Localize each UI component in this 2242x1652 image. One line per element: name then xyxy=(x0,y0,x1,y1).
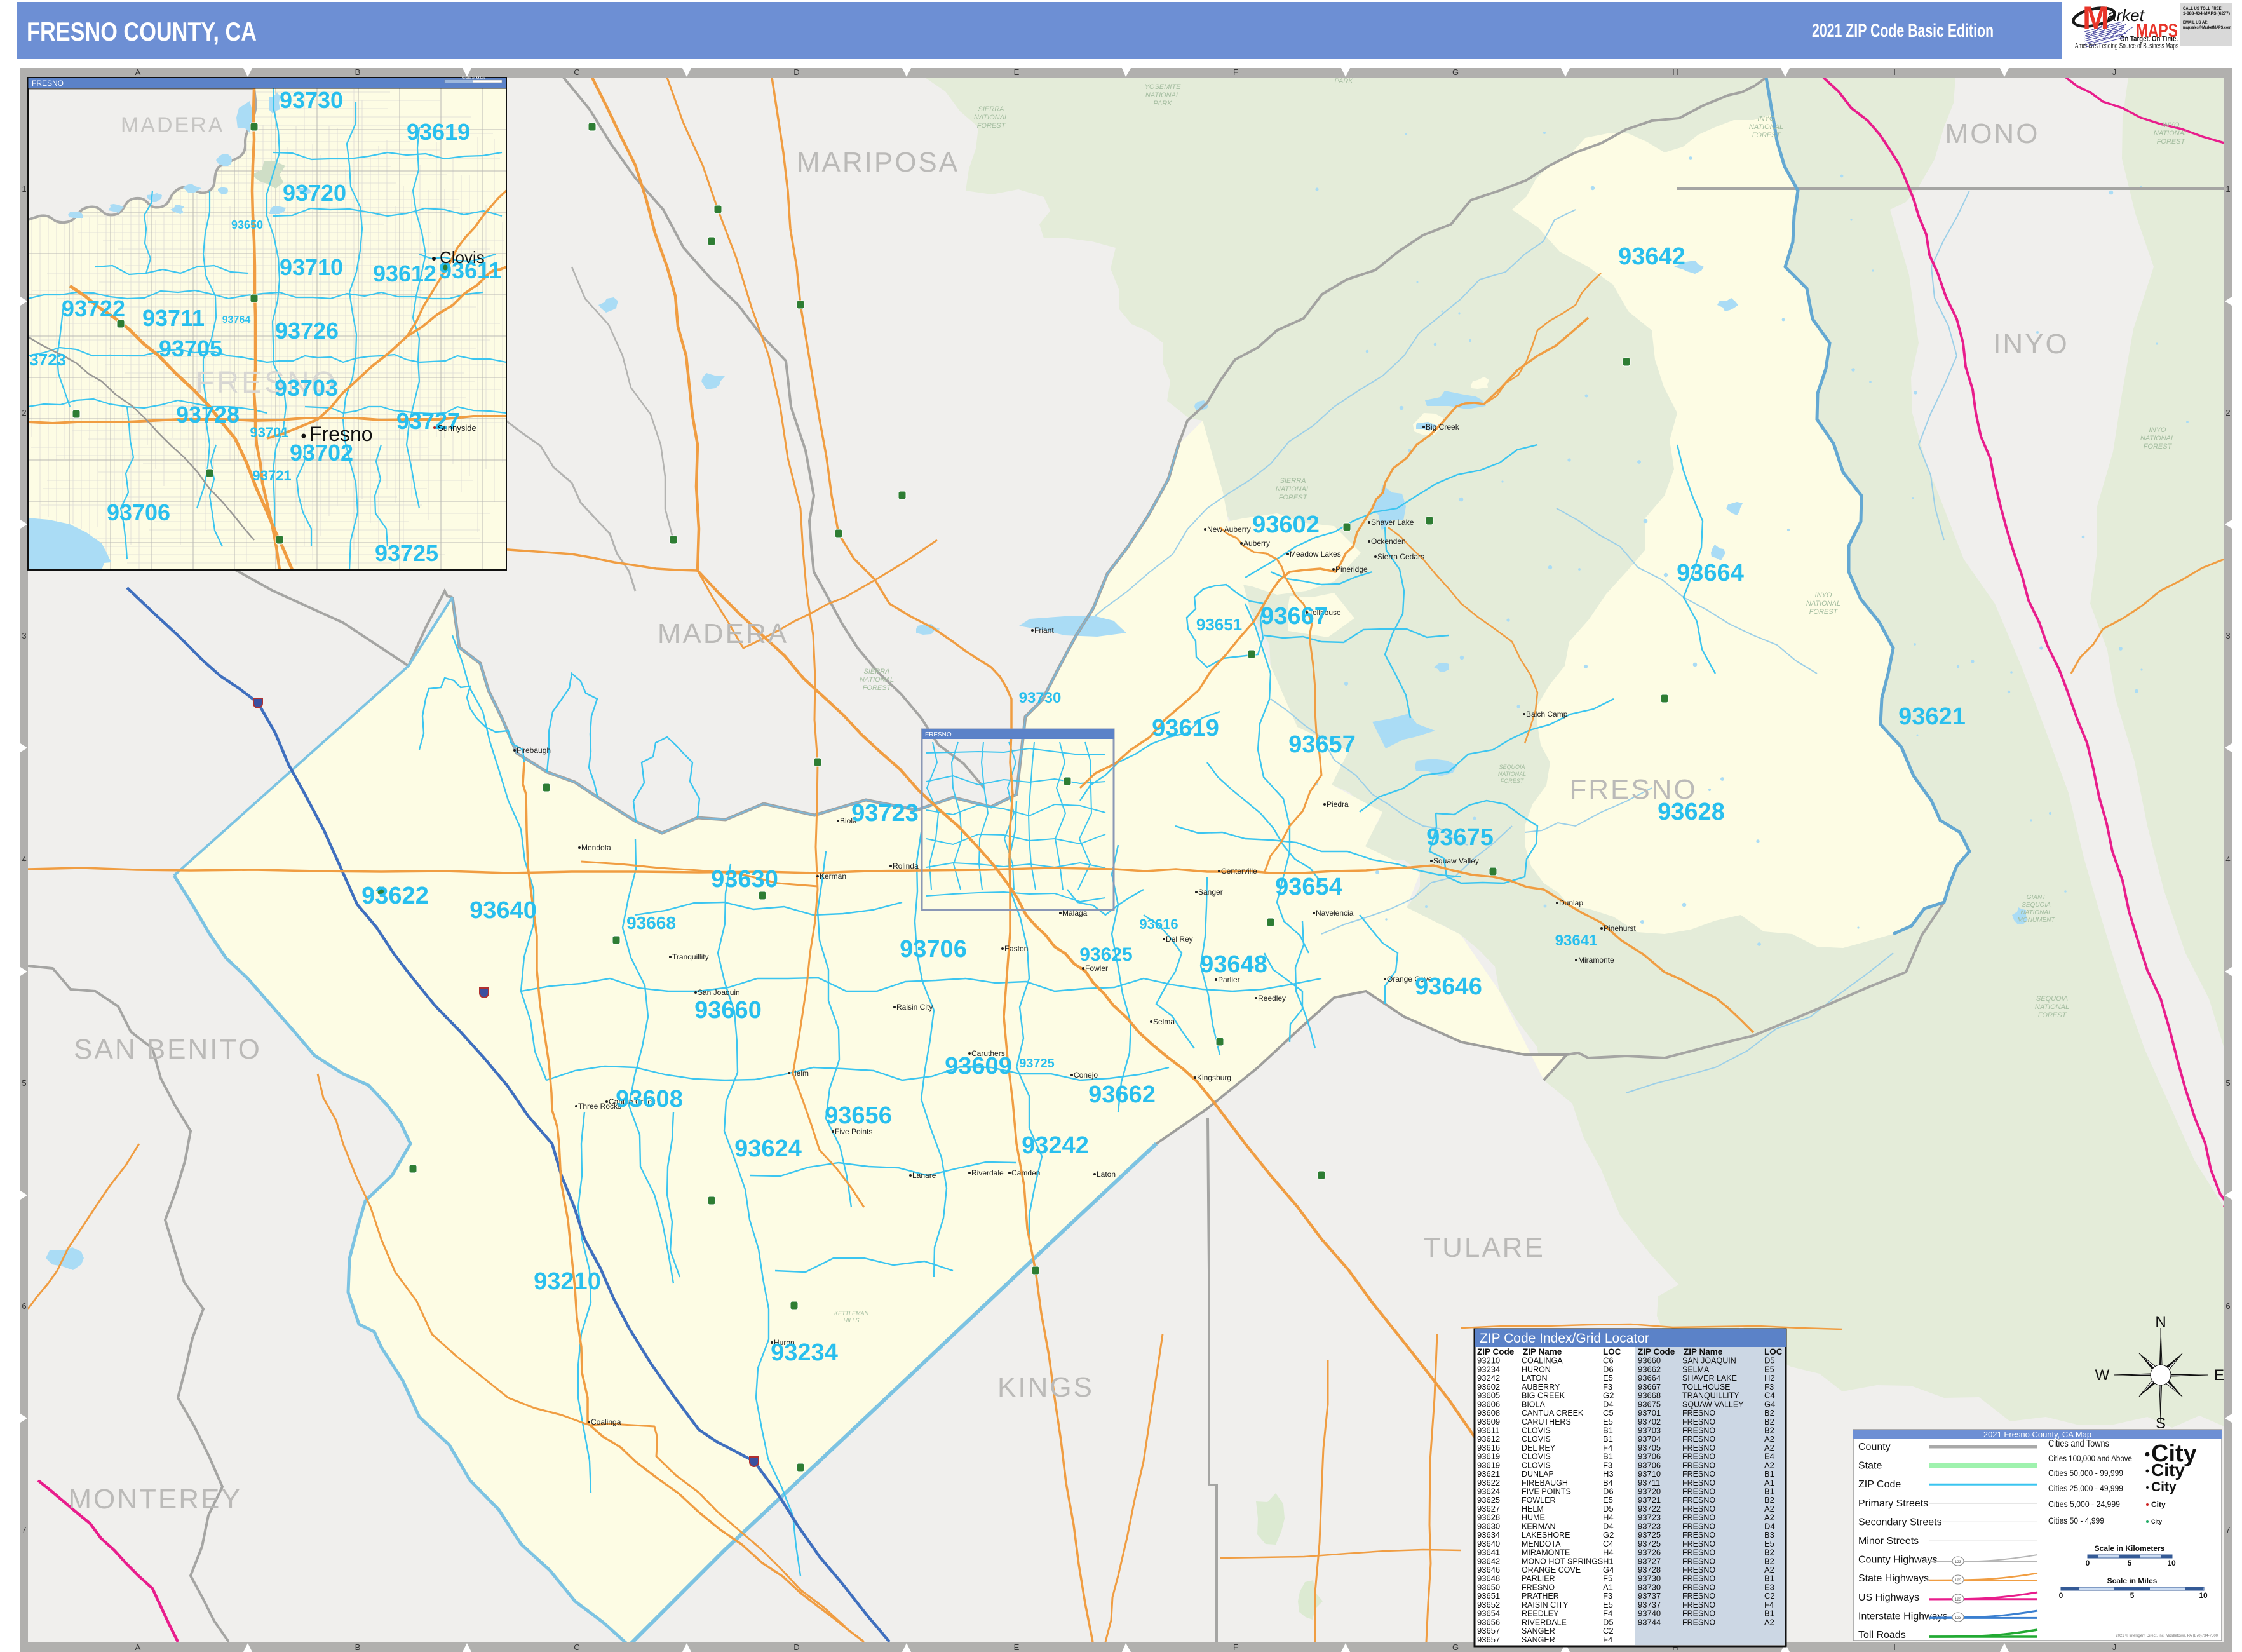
svg-text:FIVE POINTS: FIVE POINTS xyxy=(1522,1487,1571,1496)
svg-text:FOWLER: FOWLER xyxy=(1522,1496,1555,1505)
svg-text:93608: 93608 xyxy=(616,1086,683,1113)
svg-text:B2: B2 xyxy=(1764,1495,1774,1505)
svg-text:FIREBAUGH: FIREBAUGH xyxy=(1522,1479,1568,1487)
svg-text:Cities and Towns: Cities and Towns xyxy=(2048,1439,2109,1449)
svg-text:FOREST: FOREST xyxy=(1752,132,1781,139)
svg-text:NATIONAL: NATIONAL xyxy=(1145,91,1180,99)
svg-text:Sierra Cedars: Sierra Cedars xyxy=(1377,552,1424,561)
svg-text:93657: 93657 xyxy=(1477,1626,1500,1635)
svg-text:MONO: MONO xyxy=(1945,118,2040,149)
svg-text:FRESNO: FRESNO xyxy=(1682,1601,1715,1609)
svg-text:1-888-434-MAPS (6277): 1-888-434-MAPS (6277) xyxy=(2183,12,2230,16)
svg-text:Meadow Lakes: Meadow Lakes xyxy=(1290,550,1341,559)
svg-text:CLOVIS: CLOVIS xyxy=(1522,1452,1551,1461)
svg-text:A: A xyxy=(135,1642,141,1652)
svg-text:Del Rey: Del Rey xyxy=(1166,935,1193,944)
svg-text:FRESNO: FRESNO xyxy=(1682,1461,1715,1470)
svg-text:Kingsburg: Kingsburg xyxy=(1197,1073,1231,1082)
svg-text:93706: 93706 xyxy=(900,936,967,963)
svg-text:COALINGA: COALINGA xyxy=(1522,1357,1563,1365)
svg-text:FRESNO: FRESNO xyxy=(1682,1609,1715,1618)
svg-text:J: J xyxy=(2112,67,2117,77)
svg-text:FRESNO: FRESNO xyxy=(1682,1435,1715,1444)
svg-text:INYO: INYO xyxy=(1993,328,2069,360)
svg-text:Selma: Selma xyxy=(1153,1017,1175,1026)
svg-text:MADERA: MADERA xyxy=(121,113,224,137)
svg-text:MENDOTA: MENDOTA xyxy=(1522,1540,1561,1548)
svg-text:2021 Fresno County, CA Map: 2021 Fresno County, CA Map xyxy=(1983,1430,2091,1439)
svg-text:0: 0 xyxy=(2059,1591,2063,1600)
svg-text:INYO: INYO xyxy=(2149,426,2166,434)
svg-text:NATIONAL: NATIONAL xyxy=(2154,130,2188,137)
svg-text:93602: 93602 xyxy=(1252,511,1320,538)
svg-text:93608: 93608 xyxy=(1477,1408,1500,1418)
svg-text:93624: 93624 xyxy=(734,1135,802,1162)
svg-text:Rolinda: Rolinda xyxy=(893,862,919,870)
svg-text:93725: 93725 xyxy=(375,540,438,566)
svg-text:A2: A2 xyxy=(1764,1617,1774,1627)
svg-text:NATIONAL: NATIONAL xyxy=(974,114,1008,121)
svg-text:MARIPOSA: MARIPOSA xyxy=(797,147,959,178)
svg-text:ZIP Name: ZIP Name xyxy=(1684,1347,1723,1357)
svg-text:B: B xyxy=(355,1642,361,1652)
svg-text:M: M xyxy=(2083,0,2109,36)
svg-text:3: 3 xyxy=(22,631,26,640)
svg-text:93242: 93242 xyxy=(1022,1132,1089,1159)
svg-text:Scale in Miles: Scale in Miles xyxy=(2107,1576,2158,1585)
svg-text:INYO: INYO xyxy=(1815,592,1832,599)
svg-text:Primary Streets: Primary Streets xyxy=(1858,1498,1928,1509)
svg-text:NATIONAL: NATIONAL xyxy=(1498,771,1526,777)
svg-text:PARLIER: PARLIER xyxy=(1522,1574,1555,1583)
svg-text:93234: 93234 xyxy=(771,1339,838,1366)
svg-text:B: B xyxy=(355,67,361,77)
svg-text:City: City xyxy=(2151,1519,2162,1525)
svg-text:93721: 93721 xyxy=(252,468,291,484)
svg-text:3: 3 xyxy=(2225,631,2230,640)
svg-text:93650: 93650 xyxy=(231,219,263,231)
svg-text:93630: 93630 xyxy=(711,866,778,893)
svg-text:SIERRA: SIERRA xyxy=(1280,477,1306,485)
svg-text:Coalinga: Coalinga xyxy=(591,1418,621,1426)
svg-text:PARK: PARK xyxy=(1334,78,1353,85)
svg-text:E4: E4 xyxy=(1764,1452,1774,1461)
svg-text:Mendota: Mendota xyxy=(581,843,611,852)
svg-text:Easton: Easton xyxy=(1004,944,1028,953)
svg-text:D: D xyxy=(793,1642,799,1652)
svg-text:C: C xyxy=(574,1642,579,1652)
svg-text:E: E xyxy=(2214,1367,2224,1384)
svg-text:MONO HOT SPRINGS: MONO HOT SPRINGS xyxy=(1522,1557,1603,1566)
svg-text:FRESNO: FRESNO xyxy=(1682,1513,1715,1522)
svg-text:SELMA: SELMA xyxy=(1682,1365,1710,1374)
svg-text:Tranquillity: Tranquillity xyxy=(672,952,709,961)
svg-text:NATIONAL: NATIONAL xyxy=(1806,600,1840,607)
svg-text:SAN BENITO: SAN BENITO xyxy=(74,1034,262,1065)
svg-text:123: 123 xyxy=(1955,1598,1962,1602)
svg-text:93730: 93730 xyxy=(1638,1582,1661,1592)
svg-text:J: J xyxy=(2112,1642,2117,1652)
svg-text:A: A xyxy=(135,67,141,77)
svg-text:FRESNO: FRESNO xyxy=(1682,1540,1715,1548)
svg-text:FRESNO: FRESNO xyxy=(1682,1426,1715,1435)
svg-text:Minor Streets: Minor Streets xyxy=(1858,1536,1919,1547)
svg-text:93625: 93625 xyxy=(1079,944,1132,965)
svg-text:Fresno: Fresno xyxy=(309,423,373,445)
svg-text:GIANT: GIANT xyxy=(2027,894,2046,901)
svg-text:E5: E5 xyxy=(1603,1495,1613,1505)
svg-text:6: 6 xyxy=(2225,1301,2230,1311)
svg-text:NATIONAL: NATIONAL xyxy=(2140,435,2175,442)
svg-text:FOREST: FOREST xyxy=(2038,1012,2067,1019)
svg-text:4: 4 xyxy=(2225,855,2230,864)
svg-text:Dunlap: Dunlap xyxy=(1559,898,1583,907)
svg-text:93703: 93703 xyxy=(274,375,338,401)
svg-text:SHAVER LAKE: SHAVER LAKE xyxy=(1682,1374,1737,1383)
svg-text:CLOVIS: CLOVIS xyxy=(1522,1426,1551,1435)
svg-text:93730: 93730 xyxy=(280,87,343,113)
svg-text:Piedra: Piedra xyxy=(1327,800,1349,809)
svg-text:San Joaquin: San Joaquin xyxy=(698,988,740,997)
svg-text:Friant: Friant xyxy=(1034,626,1054,635)
svg-text:93616: 93616 xyxy=(1139,916,1178,932)
svg-text:SQUAW VALLEY: SQUAW VALLEY xyxy=(1682,1400,1744,1409)
svg-text:C: C xyxy=(574,67,579,77)
svg-text:H: H xyxy=(1672,67,1678,77)
svg-text:10: 10 xyxy=(2199,1591,2208,1600)
svg-text:New Auberry: New Auberry xyxy=(1207,525,1251,534)
svg-text:Sunnyside: Sunnyside xyxy=(438,423,476,433)
svg-text:F: F xyxy=(1233,1642,1238,1652)
svg-text:93764: 93764 xyxy=(222,315,251,325)
svg-text:NATIONAL: NATIONAL xyxy=(1749,123,1783,131)
svg-text:I: I xyxy=(1893,67,1896,77)
svg-text:93705: 93705 xyxy=(159,335,222,362)
svg-text:FRESNO: FRESNO xyxy=(1682,1531,1715,1540)
svg-text:EMAIL US AT:: EMAIL US AT: xyxy=(2183,21,2208,25)
svg-text:93667: 93667 xyxy=(1260,603,1328,630)
svg-text:Ockenden: Ockenden xyxy=(1371,537,1406,546)
svg-text:NATIONAL: NATIONAL xyxy=(2020,909,2051,916)
svg-text:2021 ZIP Code Basic Edition: 2021 ZIP Code Basic Edition xyxy=(1812,20,1994,41)
svg-text:NATIONAL: NATIONAL xyxy=(860,676,894,684)
svg-text:W: W xyxy=(2095,1367,2110,1384)
svg-text:E5: E5 xyxy=(1764,1539,1774,1548)
svg-text:93664: 93664 xyxy=(1677,560,1744,586)
svg-text:93619: 93619 xyxy=(407,119,470,145)
svg-text:PARK: PARK xyxy=(1153,100,1172,107)
svg-text:Shaver Lake: Shaver Lake xyxy=(1371,518,1414,527)
svg-text:Interstate Highways: Interstate Highways xyxy=(1858,1611,1948,1622)
svg-text:Three Rocks: Three Rocks xyxy=(578,1102,621,1111)
svg-text:MADERA: MADERA xyxy=(658,618,788,649)
svg-text:Malaga: Malaga xyxy=(1062,909,1088,917)
svg-text:C2: C2 xyxy=(1603,1626,1614,1635)
svg-text:93662: 93662 xyxy=(1088,1081,1156,1108)
svg-text:93646: 93646 xyxy=(1415,973,1482,1000)
svg-text:A1: A1 xyxy=(1603,1582,1613,1592)
svg-text:State: State xyxy=(1858,1461,1882,1472)
svg-text:F4: F4 xyxy=(1603,1635,1612,1644)
svg-text:FRESNO: FRESNO xyxy=(1682,1618,1715,1627)
svg-text:93650: 93650 xyxy=(1477,1582,1500,1592)
svg-text:5: 5 xyxy=(2225,1078,2230,1088)
svg-text:123: 123 xyxy=(1955,1579,1962,1583)
svg-text:HUME: HUME xyxy=(1522,1513,1545,1522)
svg-text:93612: 93612 xyxy=(373,261,436,287)
svg-text:93722: 93722 xyxy=(62,295,125,322)
svg-text:FRESNO: FRESNO xyxy=(1682,1409,1715,1418)
svg-text:FOREST: FOREST xyxy=(977,122,1006,130)
svg-text:FRESNO: FRESNO xyxy=(1682,1583,1715,1592)
svg-text:93706: 93706 xyxy=(107,499,170,525)
svg-text:93648: 93648 xyxy=(1200,951,1267,978)
svg-text:HELM: HELM xyxy=(1522,1505,1544,1513)
svg-text:Pineridge: Pineridge xyxy=(1335,565,1368,574)
svg-text:County Highways: County Highways xyxy=(1858,1555,1938,1566)
svg-text:HURON: HURON xyxy=(1522,1365,1551,1374)
svg-text:Big Creek: Big Creek xyxy=(1426,423,1460,431)
svg-text:93640: 93640 xyxy=(1477,1539,1500,1548)
svg-text:93723: 93723 xyxy=(851,800,919,827)
svg-text:State Highways: State Highways xyxy=(1858,1573,1929,1584)
svg-text:HILLS: HILLS xyxy=(843,1317,859,1324)
svg-text:6: 6 xyxy=(22,1301,26,1311)
svg-text:FRESNO: FRESNO xyxy=(1682,1470,1715,1479)
svg-text:B2: B2 xyxy=(1764,1408,1774,1418)
svg-text:City: City xyxy=(2151,1460,2185,1480)
svg-text:KERMAN: KERMAN xyxy=(1522,1522,1555,1531)
svg-text:Raisin City: Raisin City xyxy=(896,1003,933,1012)
svg-text:CLOVIS: CLOVIS xyxy=(1522,1435,1551,1444)
svg-text:MONUMENT: MONUMENT xyxy=(2018,917,2056,924)
svg-text:E: E xyxy=(1014,67,1020,77)
svg-text:Auberry: Auberry xyxy=(1243,539,1270,548)
svg-text:ZIP Name: ZIP Name xyxy=(1523,1347,1562,1357)
svg-text:Pinehurst: Pinehurst xyxy=(1604,924,1636,933)
svg-text:Firebaugh: Firebaugh xyxy=(517,746,551,755)
svg-text:City: City xyxy=(2151,1480,2177,1494)
svg-text:FOREST: FOREST xyxy=(2157,138,2186,146)
svg-text:FOREST: FOREST xyxy=(863,684,892,692)
svg-text:Helm: Helm xyxy=(791,1069,809,1078)
svg-text:93675: 93675 xyxy=(1426,824,1494,851)
svg-text:SEQUOIA: SEQUOIA xyxy=(2036,995,2068,1003)
svg-text:93725: 93725 xyxy=(1019,1057,1055,1071)
svg-text:City: City xyxy=(2151,1500,2166,1509)
svg-text:93710: 93710 xyxy=(280,254,343,280)
svg-text:FOREST: FOREST xyxy=(2144,443,2173,450)
svg-text:MIRAMONTE: MIRAMONTE xyxy=(1522,1548,1570,1557)
svg-text:5: 5 xyxy=(2128,1559,2132,1567)
svg-text:93721: 93721 xyxy=(1638,1495,1661,1505)
svg-text:93622: 93622 xyxy=(361,883,429,909)
svg-text:FOREST: FOREST xyxy=(1501,778,1525,784)
svg-text:93662: 93662 xyxy=(1638,1364,1661,1374)
svg-text:E5: E5 xyxy=(1764,1364,1774,1374)
svg-text:DEL REY: DEL REY xyxy=(1522,1444,1556,1452)
svg-text:D6: D6 xyxy=(1603,1364,1614,1374)
svg-text:2: 2 xyxy=(22,408,26,417)
svg-text:93660: 93660 xyxy=(694,997,762,1024)
svg-text:BIOLA: BIOLA xyxy=(1522,1400,1545,1409)
svg-text:93651: 93651 xyxy=(1196,615,1242,634)
svg-text:BIG CREEK: BIG CREEK xyxy=(1522,1391,1565,1400)
svg-text:REEDLEY: REEDLEY xyxy=(1522,1609,1559,1618)
svg-text:FRESNO: FRESNO xyxy=(1522,1583,1555,1592)
svg-text:C4: C4 xyxy=(1603,1539,1614,1548)
svg-text:TOLLHOUSE: TOLLHOUSE xyxy=(1682,1383,1731,1391)
svg-text:93728: 93728 xyxy=(176,402,240,428)
svg-text:Toll Roads: Toll Roads xyxy=(1858,1630,1906,1641)
svg-text:FRESNO: FRESNO xyxy=(1682,1418,1715,1426)
svg-text:2021 © Intelligent Direct, Inc: 2021 © Intelligent Direct, Inc. Middleto… xyxy=(2116,1634,2218,1638)
svg-text:D: D xyxy=(793,67,799,77)
svg-text:E: E xyxy=(1014,1642,1020,1652)
svg-text:93641: 93641 xyxy=(1555,932,1598,949)
svg-text:Cities 50,000 - 99,999: Cities 50,000 - 99,999 xyxy=(2048,1468,2123,1478)
svg-text:America's Leading Source of B: America's Leading Source of Business Map… xyxy=(2075,41,2178,50)
svg-text:7: 7 xyxy=(2225,1525,2230,1534)
svg-text:93210: 93210 xyxy=(534,1268,601,1295)
svg-text:LATON: LATON xyxy=(1522,1374,1548,1383)
svg-text:FRESNO: FRESNO xyxy=(32,79,64,88)
svg-text:FRESNO: FRESNO xyxy=(1682,1548,1715,1557)
svg-text:93654: 93654 xyxy=(1275,874,1342,900)
svg-text:Balch Camp: Balch Camp xyxy=(1526,710,1568,719)
svg-text:10: 10 xyxy=(2167,1559,2176,1567)
svg-text:SIERRA: SIERRA xyxy=(978,105,1004,113)
svg-text:SANGER: SANGER xyxy=(1522,1635,1555,1644)
svg-text:FRESNO: FRESNO xyxy=(1682,1444,1715,1452)
svg-text:93744: 93744 xyxy=(1638,1617,1661,1627)
svg-text:B1: B1 xyxy=(1603,1452,1613,1461)
svg-text:G: G xyxy=(1452,67,1459,77)
svg-text:ZIP Code Index/Grid Locator: ZIP Code Index/Grid Locator xyxy=(1480,1331,1649,1346)
svg-text:FRESNO: FRESNO xyxy=(925,731,952,738)
svg-text:FRESNO COUNTY, CA: FRESNO COUNTY, CA xyxy=(27,17,257,46)
svg-text:93640: 93640 xyxy=(469,897,537,924)
svg-text:AUBERRY: AUBERRY xyxy=(1522,1383,1560,1391)
svg-text:FRESNO: FRESNO xyxy=(1682,1505,1715,1513)
svg-text:93706: 93706 xyxy=(1638,1452,1661,1461)
svg-text:N: N xyxy=(2155,1313,2166,1330)
svg-text:93609: 93609 xyxy=(945,1053,1012,1080)
svg-text:NATIONAL: NATIONAL xyxy=(2035,1003,2069,1011)
svg-text:Kerman: Kerman xyxy=(820,872,846,881)
svg-text:5: 5 xyxy=(2130,1591,2135,1600)
svg-text:KINGS: KINGS xyxy=(997,1372,1094,1403)
svg-text:ZIP Code: ZIP Code xyxy=(1858,1479,1901,1490)
svg-text:US Highways: US Highways xyxy=(1858,1592,1919,1603)
svg-text:Reedley: Reedley xyxy=(1258,994,1286,1003)
svg-text:SAN JOAQUIN: SAN JOAQUIN xyxy=(1682,1357,1736,1365)
svg-text:Clovis: Clovis xyxy=(440,248,485,267)
svg-text:F: F xyxy=(1233,67,1238,77)
svg-text:CLOVIS: CLOVIS xyxy=(1522,1461,1551,1470)
svg-text:Cities 25,000 - 49,999: Cities 25,000 - 49,999 xyxy=(2048,1483,2123,1493)
svg-text:TRANQUILLITY: TRANQUILLITY xyxy=(1682,1391,1739,1400)
svg-text:4: 4 xyxy=(22,855,26,864)
svg-text:93657: 93657 xyxy=(1288,731,1356,758)
svg-text:93642: 93642 xyxy=(1618,243,1685,270)
svg-text:93720: 93720 xyxy=(283,180,346,206)
svg-text:FRESNO: FRESNO xyxy=(1682,1452,1715,1461)
svg-text:YOSEMITE: YOSEMITE xyxy=(1145,83,1182,91)
svg-text:Miramonte: Miramonte xyxy=(1578,956,1614,965)
svg-text:93656: 93656 xyxy=(825,1102,892,1129)
svg-text:SANGER: SANGER xyxy=(1522,1627,1555,1635)
svg-text:Centerville: Centerville xyxy=(1221,867,1257,876)
svg-text:93701: 93701 xyxy=(250,424,288,440)
svg-text:Squaw Valley: Squaw Valley xyxy=(1433,856,1479,865)
svg-text:DUNLAP: DUNLAP xyxy=(1522,1470,1554,1479)
svg-text:93726: 93726 xyxy=(275,318,339,344)
svg-text:SEQUOIA: SEQUOIA xyxy=(1499,764,1525,770)
svg-text:County: County xyxy=(1858,1442,1891,1452)
svg-text:PRATHER: PRATHER xyxy=(1522,1592,1559,1601)
svg-text:Secondary Streets: Secondary Streets xyxy=(1858,1517,1942,1527)
svg-text:93668: 93668 xyxy=(626,913,676,933)
svg-text:Navelencia: Navelencia xyxy=(1316,909,1354,917)
svg-text:1: 1 xyxy=(2225,184,2230,194)
svg-text:7: 7 xyxy=(22,1525,26,1534)
svg-text:Scale in Miles: Scale in Miles xyxy=(461,77,485,81)
svg-text:FOREST: FOREST xyxy=(1279,494,1308,501)
svg-text:RIVERDALE: RIVERDALE xyxy=(1522,1618,1567,1627)
svg-text:NATIONAL: NATIONAL xyxy=(1276,485,1310,493)
svg-text:FOREST: FOREST xyxy=(1809,608,1839,616)
svg-text:Cities 5,000 - 24,999: Cities 5,000 - 24,999 xyxy=(2048,1499,2120,1509)
svg-text:93621: 93621 xyxy=(1898,703,1966,730)
svg-text:Laton: Laton xyxy=(1097,1170,1116,1179)
svg-text:FRESNO: FRESNO xyxy=(1682,1574,1715,1583)
svg-text:LAKESHORE: LAKESHORE xyxy=(1522,1531,1570,1540)
svg-text:G: G xyxy=(1452,1642,1459,1652)
svg-text:TULARE: TULARE xyxy=(1423,1232,1545,1263)
svg-text:YOSEMITE: YOSEMITE xyxy=(1326,61,1363,69)
svg-text:FRESNO: FRESNO xyxy=(1682,1479,1715,1487)
svg-text:5: 5 xyxy=(22,1078,26,1088)
svg-text:2: 2 xyxy=(2225,408,2230,417)
svg-text:Cities 100,000 and Above: Cities 100,000 and Above xyxy=(2048,1453,2132,1463)
svg-text:mapsales@MarketMAPS.com: mapsales@MarketMAPS.com xyxy=(2183,26,2231,30)
svg-text:CALL US TOLL FREE!: CALL US TOLL FREE! xyxy=(2183,7,2223,11)
svg-text:FRESNO: FRESNO xyxy=(1682,1522,1715,1531)
svg-text:RAISIN CITY: RAISIN CITY xyxy=(1522,1601,1569,1609)
svg-text:93628: 93628 xyxy=(1658,799,1725,825)
svg-text:93711: 93711 xyxy=(142,305,205,331)
svg-text:INYO: INYO xyxy=(1758,115,1775,123)
svg-text:Cities 50 - 4,999: Cities 50 - 4,999 xyxy=(2048,1515,2104,1526)
svg-text:FRESNO: FRESNO xyxy=(1682,1496,1715,1505)
svg-text:Fowler: Fowler xyxy=(1085,964,1108,973)
svg-text:KETTLEMAN: KETTLEMAN xyxy=(834,1310,869,1317)
svg-text:93701: 93701 xyxy=(1638,1408,1661,1418)
svg-text:ORANGE COVE: ORANGE COVE xyxy=(1522,1566,1581,1574)
svg-text:93730: 93730 xyxy=(1019,689,1062,707)
svg-text:SIERRA: SIERRA xyxy=(864,668,890,675)
svg-text:SEQUOIA: SEQUOIA xyxy=(2022,902,2051,909)
svg-text:123: 123 xyxy=(1955,1561,1962,1564)
svg-text:I: I xyxy=(1893,1642,1896,1652)
svg-text:FRESNO: FRESNO xyxy=(1682,1566,1715,1574)
svg-text:C5: C5 xyxy=(1603,1408,1614,1418)
svg-text:93619: 93619 xyxy=(1152,715,1219,741)
svg-text:FRESNO: FRESNO xyxy=(1682,1487,1715,1496)
svg-text:INYO: INYO xyxy=(2163,121,2180,129)
svg-text:93657: 93657 xyxy=(1477,1635,1500,1644)
